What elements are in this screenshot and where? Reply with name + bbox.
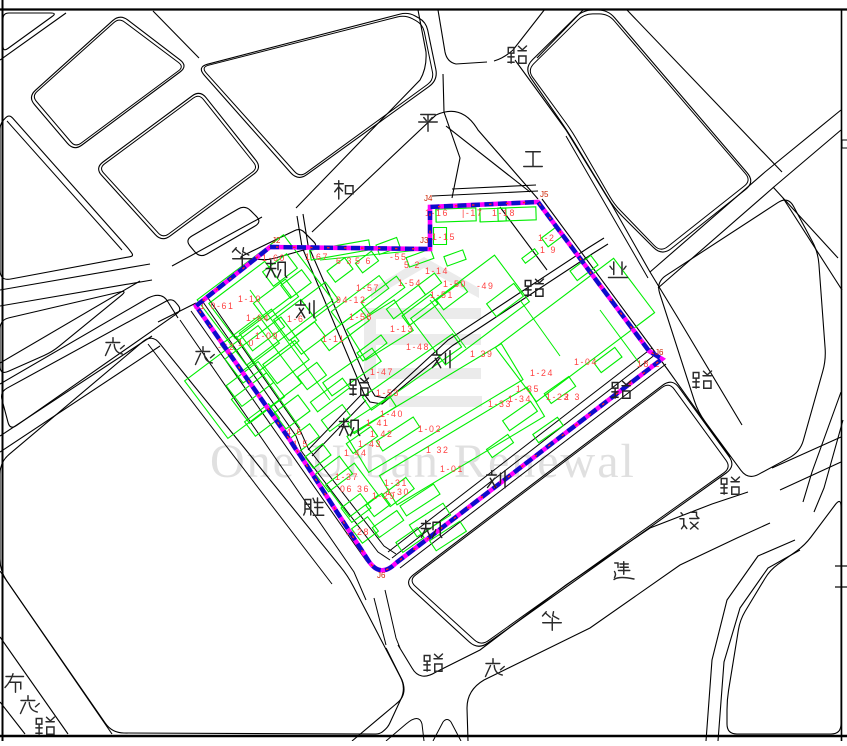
svg-text:1-15: 1-15	[432, 232, 456, 242]
svg-text:J5: J5	[540, 190, 549, 199]
svg-text:-49: -49	[477, 281, 495, 291]
svg-text:1-51: 1-51	[430, 290, 454, 300]
svg-text:1-02: 1-02	[418, 424, 442, 434]
svg-text:1-24: 1-24	[530, 368, 554, 378]
svg-text:1-6: 1-6	[287, 314, 305, 324]
svg-text:1-53: 1-53	[376, 388, 400, 398]
svg-text:1-60: 1-60	[262, 253, 286, 263]
svg-text:1-09: 1-09	[255, 331, 279, 341]
svg-text:06 36: 06 36	[340, 484, 370, 494]
svg-text:1-48: 1-48	[406, 342, 430, 352]
svg-text:1 0: 1 0	[238, 338, 255, 348]
svg-text:1-13: 1-13	[390, 324, 414, 334]
svg-text:1-37: 1-37	[335, 472, 359, 482]
svg-text:One Urban Renewal: One Urban Renewal	[210, 435, 636, 488]
svg-text:1-64: 1-64	[246, 313, 270, 323]
svg-text:94-12: 94-12	[336, 295, 367, 305]
svg-text:1 41: 1 41	[366, 418, 390, 428]
svg-text:1 9: 1 9	[540, 245, 557, 255]
svg-text:1-29: 1-29	[372, 491, 396, 501]
svg-text:1-04: 1-04	[574, 357, 598, 367]
svg-text:J6: J6	[377, 571, 386, 580]
svg-text:1 44: 1 44	[344, 448, 368, 458]
svg-text:1-01: 1-01	[440, 464, 464, 474]
svg-text:1-18: 1-18	[492, 208, 516, 218]
svg-text:J2: J2	[272, 236, 281, 245]
svg-text:1-35: 1-35	[516, 384, 540, 394]
svg-text:J6: J6	[655, 348, 664, 357]
svg-text:1-23: 1-23	[546, 392, 570, 402]
svg-text:J3: J3	[420, 236, 429, 245]
svg-text:|-17: |-17	[462, 208, 483, 218]
svg-text:1-11: 1-11	[322, 334, 345, 344]
svg-text:J4: J4	[424, 194, 433, 203]
svg-text:5 6: 5 6	[355, 256, 372, 266]
svg-text:1 32: 1 32	[426, 445, 450, 455]
svg-text:1-50: 1-50	[443, 279, 467, 289]
svg-text:6 3: 6 3	[336, 256, 353, 266]
svg-text:1-57: 1-57	[356, 283, 380, 293]
svg-text:1-33: 1-33	[488, 399, 512, 409]
svg-text:1-47: 1-47	[370, 367, 394, 377]
svg-text:1-54: 1-54	[398, 278, 422, 288]
svg-text:1-14: 1-14	[425, 266, 449, 276]
svg-text:1-58: 1-58	[349, 312, 373, 322]
svg-text:1-2: 1-2	[538, 233, 556, 243]
svg-text:-55: -55	[390, 252, 408, 262]
svg-text:1-67: 1-67	[305, 252, 329, 262]
svg-text:1 42: 1 42	[370, 429, 394, 439]
svg-text:1 39: 1 39	[470, 349, 494, 359]
svg-text:1-10: 1-10	[238, 294, 262, 304]
